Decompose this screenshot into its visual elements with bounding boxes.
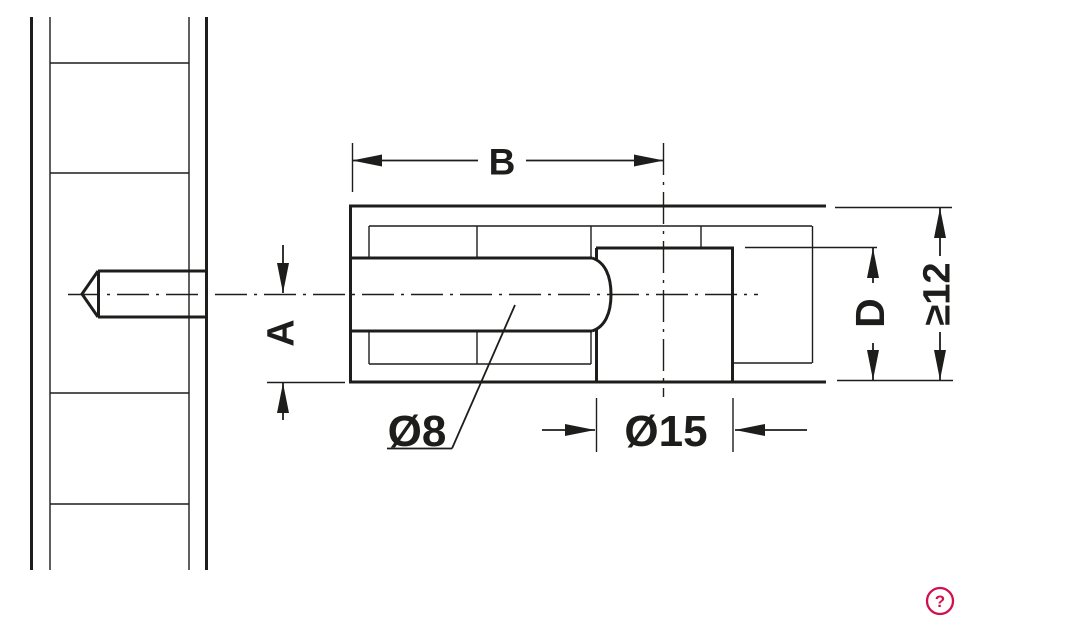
dim-label-min12: ≥12 — [917, 262, 959, 325]
dimension-arrowhead — [634, 155, 664, 167]
help-icon-glyph[interactable]: ? — [935, 592, 945, 611]
dimension-arrowhead — [277, 383, 289, 413]
dimension-arrowhead — [934, 208, 946, 238]
dimension-arrowhead — [565, 424, 595, 436]
dim-label-a: A — [261, 319, 303, 346]
dimension-line — [452, 305, 515, 449]
drawing-canvas: BAØ8Ø15D≥12? — [0, 0, 1070, 635]
dim-label-dia15: Ø15 — [624, 407, 707, 456]
dim-label-d: D — [847, 298, 893, 328]
dim-label-b: B — [489, 141, 516, 182]
dimension-arrowhead — [352, 155, 382, 167]
dimension-arrowhead — [867, 350, 879, 380]
dim-label-dia8: Ø8 — [388, 407, 447, 456]
dimension-arrowhead — [735, 424, 765, 436]
dimension-arrowhead — [277, 263, 289, 293]
dimension-arrowhead — [867, 248, 879, 278]
technical-drawing: BAØ8Ø15D≥12? — [0, 0, 1070, 635]
dimension-arrowhead — [934, 350, 946, 380]
